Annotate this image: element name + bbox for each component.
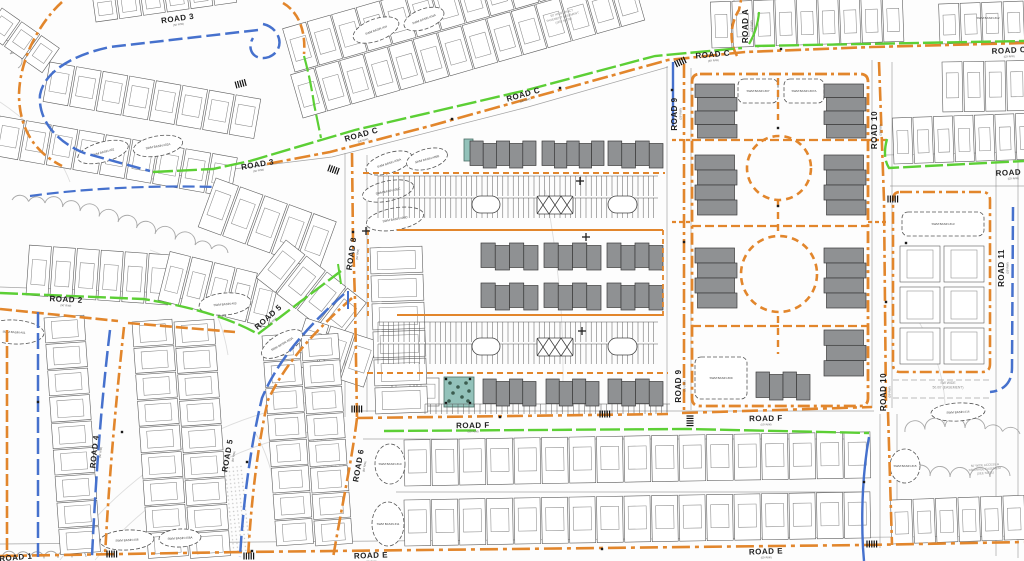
building-unit (481, 243, 495, 268)
lot (679, 435, 706, 481)
lot (942, 62, 963, 112)
swm-basin-label: SWM BASIN #15 (893, 464, 916, 468)
lot (882, 0, 904, 42)
lot (844, 492, 871, 538)
lot (268, 413, 307, 441)
lot (92, 0, 117, 22)
building-unit (827, 170, 867, 185)
tree-line (12, 195, 228, 253)
lot (57, 500, 99, 528)
building-unit (608, 379, 622, 404)
lot (98, 250, 123, 301)
lot (203, 90, 235, 134)
lot (982, 2, 1003, 43)
building-unit (587, 286, 601, 311)
lot (963, 61, 984, 111)
lot (141, 451, 183, 479)
building-unit (824, 361, 864, 376)
road-label-road-c: ROAD C(50' R/W) (991, 45, 1024, 59)
lot (960, 3, 981, 44)
swm-basin: SWM BASIN #05B (404, 144, 450, 174)
site-plan-canvas[interactable]: SWM BASIN #02SWM BASIN #02ASWM BASIN #04… (0, 0, 1024, 561)
building-unit (622, 382, 636, 407)
swm-basin: SWM BASIN #10 (375, 444, 405, 484)
building-unit (607, 243, 621, 268)
road-label-text: ROAD F (749, 414, 783, 424)
lot (308, 439, 347, 467)
valve-marker-icon (885, 301, 887, 303)
building-unit (546, 379, 559, 404)
valve-marker-icon (905, 242, 907, 244)
apartment-building (544, 283, 601, 310)
lot (459, 439, 486, 485)
lot (46, 342, 88, 370)
valve-marker-icon (777, 127, 779, 129)
lot (939, 3, 960, 44)
lot (995, 114, 1016, 161)
plan-note: 50' WIDE ACCESS &DRAINAGE EASEMENT(SEE N… (968, 462, 1002, 476)
lot (96, 71, 128, 115)
building-unit (558, 246, 572, 271)
road-label-text: ROAD 9 (670, 97, 679, 130)
station-ticks (687, 416, 694, 426)
apartment-building (481, 283, 538, 310)
road-label-road-e: ROAD E(50' R/W) (354, 550, 389, 561)
tick-mark (335, 167, 337, 174)
lot (486, 498, 513, 544)
lot (143, 478, 185, 506)
road-rw-sublabel: (50' R/W) (678, 108, 682, 119)
lot (176, 346, 218, 374)
courtyard-circle (741, 236, 817, 312)
lot (269, 439, 308, 467)
island-outline (608, 338, 637, 355)
road-label-text: ROAD 10 (870, 111, 879, 149)
apartment-building (546, 379, 599, 406)
road-rw-sublabel: (50' R/W) (1008, 176, 1019, 181)
building-unit (579, 144, 591, 169)
tick-mark (328, 165, 330, 172)
building-unit (783, 372, 797, 398)
building-unit (649, 286, 663, 311)
road-label-road-9: ROAD 9(50' R/W) (670, 97, 682, 130)
lot (1003, 1, 1024, 42)
road-rw-sublabel: (50' R/W) (682, 380, 686, 391)
layer-lots (0, 0, 1024, 558)
valve-marker-icon (863, 481, 865, 483)
survey-cross-icon (576, 177, 584, 185)
building-unit (510, 379, 523, 404)
lot (514, 498, 541, 544)
parking-island (472, 196, 500, 213)
building-unit (698, 293, 738, 308)
road-label-road-e: ROAD E(50' R/W) (749, 546, 784, 560)
apartment-building (756, 372, 810, 400)
building-unit (827, 345, 867, 360)
road-label-road-f: ROAD F(50' R/W) (456, 421, 490, 434)
lot (305, 386, 344, 414)
tree-icon (460, 395, 464, 399)
lot (839, 0, 861, 43)
lot (944, 246, 984, 282)
lot (816, 432, 843, 478)
orange-utility-line (888, 412, 892, 545)
apartment-building (608, 379, 663, 406)
lot (55, 474, 97, 502)
lot (569, 437, 596, 483)
lot (789, 433, 816, 479)
apartment-building (481, 243, 538, 270)
building-unit (587, 246, 601, 271)
lot (275, 518, 314, 546)
lot (974, 115, 995, 162)
swm-basin: SWM BASIN #05C (360, 176, 415, 206)
station-ticks (244, 553, 254, 560)
building-unit (496, 382, 509, 407)
lot (48, 368, 90, 396)
lot-strip (404, 432, 871, 486)
building-unit (770, 375, 784, 401)
lot (651, 495, 678, 541)
park-corner-marker (445, 378, 447, 380)
lot (307, 413, 346, 441)
building-unit (510, 144, 523, 169)
building-unit (524, 246, 538, 271)
tree-icon (456, 385, 460, 389)
building-unit (481, 283, 495, 308)
valve-marker-icon (37, 401, 39, 403)
road-label-text: ROAD C (991, 45, 1024, 56)
lot (122, 252, 147, 303)
road-label-text: ROAD 9 (674, 369, 683, 402)
lot (651, 435, 678, 481)
building-unit (483, 144, 496, 169)
lot (50, 395, 92, 423)
lot (933, 116, 954, 163)
building-unit (607, 283, 621, 308)
building-unit (495, 286, 509, 311)
parking-island (608, 338, 637, 355)
road-label-road-1: ROAD 1(50' R/W) (0, 552, 33, 561)
parking-island (608, 196, 637, 213)
lot (818, 0, 840, 44)
lot (892, 117, 913, 164)
building-unit (622, 144, 636, 169)
swm-basin-label: SWM BASIN #09 (709, 376, 732, 380)
building-unit (827, 125, 867, 139)
lot-strip (900, 246, 940, 364)
swm-basin: SWM BASIN #11 (372, 502, 404, 546)
building-unit (510, 243, 524, 268)
lot (174, 319, 216, 347)
lot (890, 499, 913, 544)
lot (44, 315, 86, 343)
road-label-road-c: ROAD C(50' R/W) (505, 86, 542, 107)
island-outline (472, 338, 500, 355)
building-unit (621, 286, 635, 311)
plan-note-line: 50.00' (EASEMENT) (933, 385, 964, 389)
swm-basin-label: SWM BASIN #07 (746, 89, 769, 93)
road-label-text: ROAD E (354, 550, 389, 560)
lot (514, 438, 541, 484)
tree-icon (448, 381, 452, 385)
road-label-road-2: ROAD 2(50' R/W) (49, 294, 83, 308)
road-label-text: ROAD 11 (997, 249, 1006, 287)
swm-basin: SWM BASIN #06 (100, 529, 155, 552)
lot (624, 496, 651, 542)
lot (1015, 113, 1024, 160)
road-rw-sublabel: (50' R/W) (761, 555, 772, 559)
swm-basin: SWM BASIN #07A (784, 79, 824, 103)
road-label-road-6: ROAD 6(50' R/W) (351, 448, 369, 483)
road-label-road-d: ROAD D(50' R/W) (995, 167, 1024, 181)
building-unit (695, 278, 735, 293)
survey-cross-icon (578, 327, 586, 335)
lot-strip (43, 62, 261, 139)
lot (303, 360, 342, 388)
building-unit (523, 141, 536, 166)
apartment-building (695, 155, 737, 215)
station-ticks (352, 406, 362, 413)
building-unit (698, 263, 738, 278)
lot (273, 492, 312, 520)
lot (431, 439, 458, 485)
tree-icon (451, 391, 455, 395)
tree-icon (467, 389, 471, 393)
valve-marker-icon (246, 461, 248, 463)
lot-strip (944, 246, 984, 364)
blue-utility-line (990, 207, 1013, 392)
building-unit (797, 375, 811, 401)
lot (624, 436, 651, 482)
island-outline (472, 196, 500, 213)
site-plan-page: SWM BASIN #02SWM BASIN #02ASWM BASIN #04… (0, 0, 1024, 561)
lot (980, 496, 1003, 541)
building-unit (621, 246, 635, 271)
lot-strip (404, 492, 871, 546)
road-rw-sublabel: (50' R/W) (1004, 54, 1015, 59)
lot (149, 81, 181, 125)
apartment-building (824, 155, 866, 215)
road-label-road-3: ROAD 3(50' R/W) (240, 157, 275, 175)
swm-basin: SWM BASIN #15 (890, 449, 920, 483)
apartment-building (824, 84, 866, 138)
lot (123, 76, 155, 120)
apartment-building (824, 248, 866, 308)
swm-basin: SWM BASIN #13 (902, 212, 984, 236)
swm-basin-label: SWM BASIN #07A (791, 89, 816, 93)
lot (900, 328, 940, 364)
swm-basin: SWM BASIN #07 (738, 79, 778, 103)
road-rw-sublabel: (50' R/W) (1005, 262, 1009, 273)
valve-marker-icon (352, 231, 354, 233)
apartment-building (607, 283, 663, 310)
swm-basin: SWM BASIN #14 (931, 402, 986, 423)
lot-strip (890, 495, 1024, 544)
lot (46, 125, 78, 169)
lot (310, 466, 349, 494)
lot (944, 328, 984, 364)
building-unit (824, 185, 864, 200)
lot (596, 496, 623, 542)
lot (50, 247, 75, 298)
station-ticks (888, 196, 898, 203)
restriped-island (537, 338, 573, 356)
layer-buildings (470, 84, 866, 406)
lot (181, 425, 223, 453)
building-unit (483, 379, 496, 404)
building-unit (649, 144, 663, 169)
building-unit (523, 382, 536, 407)
apartment-building (695, 84, 737, 138)
building-unit (592, 141, 604, 166)
building-unit (635, 243, 649, 268)
road-label-text: ROAD 2 (49, 294, 83, 305)
island-outline (608, 196, 637, 213)
road-label-road-3: ROAD 3(50' R/W) (161, 12, 196, 29)
tick-mark (235, 82, 237, 89)
lot (43, 62, 75, 106)
tick-mark (242, 80, 244, 87)
road-label-road-8: ROAD 8(50' R/W) (345, 237, 362, 272)
swm-basin-label: SWM BASIN #13 (931, 222, 954, 226)
valve-marker-icon (671, 89, 673, 91)
building-unit (544, 283, 558, 308)
building-unit (698, 125, 738, 139)
building-unit (698, 200, 738, 215)
lot (180, 399, 222, 427)
plan-note: SW WIDE50.00' (EASEMENT) (933, 381, 964, 389)
building-unit (544, 243, 558, 268)
road-label-road-c: ROAD C(50' R/W) (695, 49, 731, 64)
lot (70, 67, 102, 111)
building-unit (827, 98, 867, 112)
road-label-text: ROAD F (456, 421, 490, 431)
lot (145, 504, 187, 532)
building-unit (827, 200, 867, 215)
lot (116, 0, 141, 19)
building-unit (586, 382, 599, 407)
building-unit (608, 141, 622, 166)
road-label-road-4: ROAD 4(50' R/W) (88, 435, 104, 469)
swm-basin-label: SWM BASIN #10 (378, 462, 401, 466)
lot (734, 494, 761, 540)
building-unit (559, 382, 572, 407)
valve-marker-icon (683, 241, 685, 243)
road-rw-sublabel: (50' R/W) (878, 124, 882, 135)
road-label-text: ROAD 1 (0, 552, 33, 561)
lot (985, 61, 1006, 111)
building-unit (649, 246, 663, 271)
road-label-text: ROAD 10 (879, 373, 888, 411)
lot (314, 518, 353, 546)
lot-strip (942, 61, 1024, 112)
building-unit (695, 111, 735, 125)
building-unit (554, 144, 566, 169)
valve-marker-icon (777, 205, 779, 207)
lot (178, 372, 220, 400)
apartment-building (695, 248, 737, 308)
building-unit (635, 283, 649, 308)
valve-marker-icon (121, 431, 123, 433)
lot (775, 0, 797, 46)
building-unit (695, 185, 735, 200)
building-unit (824, 248, 864, 263)
building-unit (695, 248, 735, 263)
building-unit (558, 286, 572, 311)
road-label-text: ROAD A (741, 9, 750, 43)
lot (183, 451, 225, 479)
lot (706, 434, 733, 480)
lot (761, 433, 788, 479)
building-unit (695, 84, 735, 98)
lot (134, 346, 176, 374)
lot (138, 399, 180, 427)
building-unit (756, 372, 770, 398)
lot (541, 497, 568, 543)
lot (913, 499, 936, 544)
orange-utility-line (682, 407, 872, 413)
lot (51, 421, 93, 449)
lot (404, 440, 431, 486)
lot (900, 246, 940, 282)
lot (679, 495, 706, 541)
lot (301, 333, 340, 361)
valve-marker-icon (601, 548, 603, 550)
lot-strip (198, 178, 336, 271)
station-ticks (235, 79, 246, 88)
road-label-road-11: ROAD 11(50' R/W) (997, 249, 1009, 287)
lot (1006, 61, 1024, 111)
lot (596, 436, 623, 482)
lot (710, 1, 732, 48)
lot (74, 248, 99, 299)
apartment-building (607, 243, 663, 270)
building-unit (824, 330, 864, 345)
tick-mark (244, 79, 246, 86)
building-unit (636, 379, 650, 404)
road-rw-sublabel: (50' R/W) (468, 429, 479, 433)
lot (20, 121, 52, 165)
lot (486, 438, 513, 484)
road-label-text: ROAD D (995, 167, 1024, 178)
lot (176, 85, 208, 129)
tick-mark (330, 166, 332, 173)
lot (211, 0, 236, 5)
lot (958, 497, 981, 542)
building-unit (824, 84, 864, 98)
building-unit (524, 286, 538, 311)
orange-utility-line (105, 327, 124, 556)
lot-strip (892, 113, 1024, 164)
tick-mark (337, 168, 339, 175)
lot (404, 500, 431, 546)
lot (954, 115, 975, 162)
swm-basin-label: SWM BASIN #11 (377, 522, 400, 526)
building-unit (495, 246, 509, 271)
road-rw-sublabel: (50' R/W) (761, 422, 772, 426)
lot (229, 95, 261, 139)
building-unit (695, 155, 735, 170)
building-unit (824, 155, 864, 170)
tick-mark (332, 166, 334, 173)
building-unit (470, 141, 483, 166)
lot (136, 372, 178, 400)
road-rw-sublabel: (50' R/W) (887, 386, 891, 397)
valve-marker-icon (499, 416, 501, 418)
swm-basin-label: SWM BASIN #12 (976, 16, 999, 20)
road-label-road-f: ROAD F(50' R/W) (749, 414, 783, 427)
